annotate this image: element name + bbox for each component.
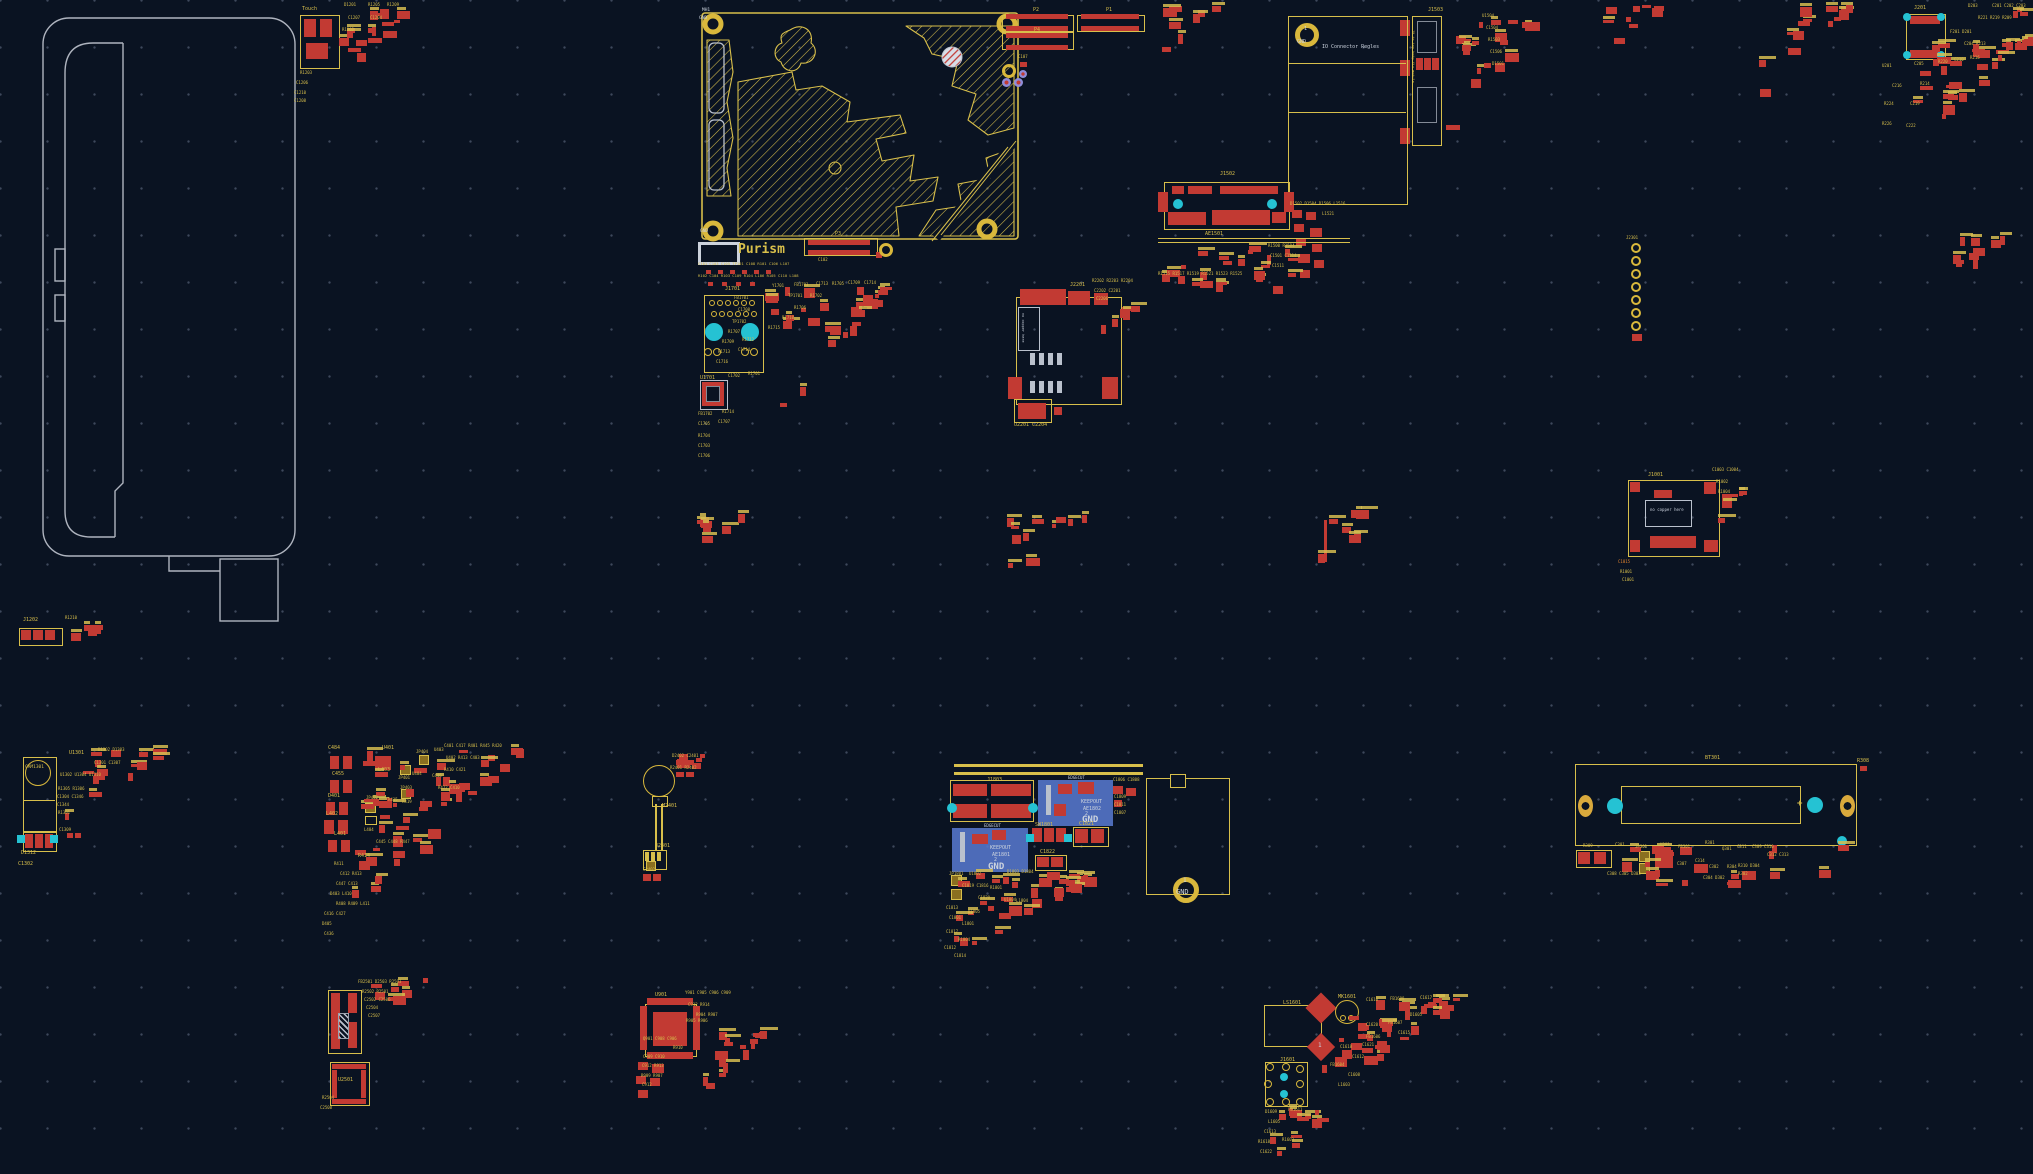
via[interactable] [1280, 1073, 1288, 1081]
component-pad[interactable] [1953, 260, 1964, 264]
ref-label[interactable]: Y1701 [772, 284, 784, 288]
ref-label[interactable]: U901 [655, 993, 667, 998]
component-pad[interactable] [1787, 32, 1798, 35]
pad-ring[interactable] [1340, 1015, 1346, 1021]
component-pad[interactable] [361, 1070, 366, 1098]
component-pad[interactable] [1044, 828, 1054, 842]
ref-label[interactable]: D1302 D1303 [98, 748, 125, 752]
ref-label[interactable]: C2508 [320, 1106, 332, 1110]
component-pad[interactable] [1405, 1010, 1410, 1019]
component-pad[interactable] [1652, 846, 1664, 853]
ref-label[interactable]: C1709 [848, 281, 860, 285]
component-pad[interactable] [1279, 1114, 1286, 1120]
ref-label[interactable]: J2301 [1626, 236, 1638, 240]
component-pad[interactable] [1626, 17, 1632, 22]
component-pad[interactable] [1973, 248, 1985, 257]
ref-label[interactable]: J1202 [23, 618, 38, 623]
ref-label[interactable]: C1204 [370, 16, 382, 20]
ref-label[interactable]: R2502 R2501 [362, 990, 389, 994]
ref-label[interactable]: R1500 R1504 [1268, 244, 1295, 248]
ref-label[interactable]: C1801 [949, 916, 961, 920]
ref-label[interactable]: P4 [1034, 28, 1040, 33]
component-pad[interactable] [1973, 260, 1978, 269]
ref-label[interactable]: C219 [1910, 102, 1920, 106]
ref-label[interactable]: R419 [402, 800, 412, 804]
component-pad[interactable] [1048, 381, 1053, 393]
component-pad[interactable] [1066, 880, 1075, 886]
ref-label[interactable]: U1701 [700, 376, 715, 381]
component-pad[interactable] [992, 879, 999, 883]
j1701-group[interactable]: J1701Y1701FB1703C1713R1705C1709C1714FB17… [698, 280, 888, 475]
component-pad[interactable] [954, 764, 1143, 767]
component-pad[interactable] [1019, 70, 1027, 78]
component-pad[interactable] [1322, 1065, 1326, 1073]
ref-label[interactable]: R1712 [742, 338, 754, 342]
component-pad[interactable] [468, 791, 477, 795]
chassis-side-notch-2[interactable] [55, 295, 65, 321]
ref-label[interactable]: 1 [1304, 27, 1307, 32]
component-pad[interactable] [738, 514, 745, 523]
ref-label[interactable]: U1802 [969, 872, 981, 876]
ref-label[interactable]: J1701 [725, 287, 740, 292]
ref-label[interactable]: C2402 [643, 868, 655, 872]
component-pad[interactable] [1081, 14, 1139, 19]
component-pad[interactable] [419, 807, 428, 811]
component-pad[interactable] [1960, 237, 1965, 246]
component-pad[interactable] [1652, 8, 1663, 17]
component-pad[interactable] [1126, 788, 1136, 796]
ref-label[interactable]: U402 R413 C403 [446, 756, 480, 760]
ref-label[interactable]: JP403 [400, 786, 412, 790]
chassis-inner-vertical[interactable] [115, 43, 123, 537]
component-pad[interactable] [383, 31, 396, 39]
component-pad[interactable] [1054, 407, 1062, 415]
ref-label[interactable]: C1615 [1398, 1031, 1410, 1035]
component-pad[interactable] [356, 40, 367, 46]
component-pad[interactable] [1272, 212, 1286, 223]
ref-label[interactable]: C1001 [1622, 578, 1634, 582]
component-pad[interactable] [686, 772, 694, 777]
component-pad[interactable] [1400, 1037, 1409, 1040]
ref-label[interactable]: C1511 [1272, 264, 1284, 268]
via[interactable] [1607, 798, 1623, 814]
component-pad[interactable] [703, 1077, 708, 1086]
component-pad[interactable] [1920, 71, 1931, 76]
ref-label[interactable]: C216 [1892, 84, 1902, 88]
component-pad[interactable] [1178, 34, 1182, 43]
ref-label[interactable]: SW1801 [1035, 823, 1053, 828]
ref-label[interactable]: C1819 C1816 [962, 884, 989, 888]
pad-ring[interactable] [1002, 64, 1016, 78]
component-pad[interactable] [1270, 1137, 1276, 1144]
via[interactable] [1903, 13, 1911, 21]
pad-ring[interactable] [879, 243, 893, 257]
component-pad[interactable] [357, 53, 366, 63]
ref-label[interactable]: + [1797, 800, 1802, 809]
pad-ring[interactable] [1335, 1000, 1359, 1024]
j1803-group[interactable]: J1803EDGECUTKEEPOUTAE18012GNDEDGECUTKEEP… [938, 746, 1238, 968]
ref-label[interactable]: D1501 [1492, 62, 1504, 66]
ref-label[interactable]: R1704 [698, 434, 710, 438]
component-pad[interactable] [1377, 1054, 1384, 1061]
ref-label[interactable]: U2201 C2204 [1014, 423, 1047, 428]
ref-label[interactable]: R1004 [1718, 490, 1730, 494]
ref-label[interactable]: C1613 [1264, 1130, 1276, 1134]
component-pad[interactable] [1578, 795, 1593, 817]
component-pad[interactable] [330, 780, 339, 793]
main-pcb[interactable] [700, 10, 1022, 242]
ref-label[interactable]: C1708 [738, 308, 750, 312]
pad-ring[interactable] [704, 348, 712, 356]
ref-label[interactable]: R102 C104 R103 C109 R104 L106 R105 C110 … [698, 274, 799, 278]
ref-label[interactable]: C205 [1914, 62, 1924, 66]
component-pad[interactable] [1032, 519, 1043, 525]
component-pad[interactable] [808, 240, 870, 245]
component-pad[interactable] [643, 874, 651, 881]
ref-label[interactable]: R411 [334, 862, 344, 866]
component-pad[interactable] [1704, 540, 1718, 552]
component-pad[interactable] [1273, 286, 1283, 294]
component-pad[interactable] [702, 536, 713, 544]
ref-label[interactable]: U201 [1882, 64, 1892, 68]
ref-label[interactable]: J2401 [655, 844, 670, 849]
ref-label[interactable]: C1501 C1514 [1270, 254, 1297, 258]
ref-label[interactable]: C1809 [1114, 795, 1126, 799]
ref-label[interactable]: C210 [1954, 58, 1964, 62]
component-pad[interactable] [1739, 491, 1747, 494]
component-pad[interactable] [1992, 62, 1998, 69]
ref-label[interactable]: FB1606 [1366, 1035, 1380, 1039]
component-pad[interactable] [1012, 909, 1021, 916]
component-pad[interactable] [1770, 872, 1780, 879]
ref-label[interactable]: GND [699, 17, 707, 22]
ref-label[interactable]: C1302 [18, 862, 33, 867]
component-pad[interactable] [1048, 353, 1053, 365]
pad-ring[interactable] [1296, 1080, 1304, 1088]
component-pad[interactable] [347, 32, 352, 38]
component-pad[interactable] [857, 287, 864, 296]
component-pad[interactable] [1614, 38, 1626, 44]
component-pad[interactable] [1428, 1002, 1436, 1006]
ref-label[interactable]: J2201 [1070, 283, 1085, 288]
ref-label[interactable]: U1302 U1304 U1310 [60, 773, 101, 777]
component-pad[interactable] [339, 802, 348, 815]
ref-label[interactable]: R1503 [1488, 38, 1500, 42]
component-pad[interactable] [380, 815, 390, 819]
component-pad[interactable] [1023, 533, 1030, 541]
component-pad[interactable] [719, 1059, 726, 1067]
component-pad[interactable] [1630, 482, 1640, 492]
ref-label[interactable]: C1820 [978, 896, 990, 900]
ref-label[interactable]: R1301 [58, 811, 70, 815]
j1001[interactable]: J1001C1003 C1004R1002R1004no copper here… [1616, 464, 1742, 586]
component-pad[interactable] [1728, 880, 1742, 889]
ref-label[interactable]: D1609 [1265, 1110, 1277, 1114]
ref-label[interactable]: C1210 [294, 91, 306, 95]
ref-label[interactable]: GND [700, 230, 708, 235]
component-pad[interactable] [1484, 63, 1491, 68]
pad-ring[interactable] [725, 300, 731, 306]
ref-label[interactable]: R216 [1970, 56, 1980, 60]
component-pad[interactable] [153, 756, 164, 760]
component-pad[interactable] [1522, 22, 1532, 28]
ref-label[interactable]: L401 [334, 832, 346, 837]
component-pad[interactable] [1959, 93, 1966, 101]
ref-label[interactable]: R1209 [387, 3, 399, 7]
component-pad[interactable] [71, 633, 81, 642]
ref-label[interactable]: R1702 [810, 294, 822, 298]
ref-label[interactable]: MH1 [702, 9, 710, 14]
mh1-label[interactable]: MH1GND [696, 6, 736, 36]
pad-ring[interactable] [1631, 295, 1641, 305]
ref-label[interactable]: D1201 [344, 3, 356, 7]
component-pad[interactable] [1471, 79, 1480, 88]
component-pad[interactable] [371, 886, 381, 892]
ref-label[interactable]: R415 [388, 798, 398, 802]
ref-label[interactable]: C455 [332, 772, 344, 777]
ref-label[interactable]: D1605 [1410, 1013, 1422, 1017]
ref-label[interactable]: C1713 [816, 282, 828, 286]
component-pad[interactable] [348, 1022, 357, 1048]
component-pad[interactable] [825, 326, 831, 332]
component-pad[interactable] [332, 1064, 366, 1069]
ref-label[interactable]: R1710 [782, 316, 794, 320]
u2501-group[interactable]: FB2501 D2503 R2503R2502 R2501C2502 C2506… [320, 976, 432, 1112]
component-pad[interactable] [441, 792, 450, 801]
ref-label[interactable]: C2502 C2506 [364, 998, 391, 1002]
component-pad[interactable] [1178, 276, 1185, 284]
ref-label[interactable]: JP401 [398, 776, 410, 780]
component-pad[interactable] [1659, 861, 1665, 866]
ref-label[interactable]: C1807 [1114, 811, 1126, 815]
ref-label[interactable]: C1207 [348, 16, 360, 20]
component-pad[interactable] [1054, 804, 1066, 816]
component-pad[interactable] [352, 890, 359, 898]
ref-label[interactable]: C436 [324, 932, 334, 936]
ref-label[interactable]: U1504 [1482, 14, 1494, 18]
component-pad[interactable] [1380, 1045, 1390, 1053]
ref-label[interactable]: C1822 [1040, 850, 1055, 855]
ref-label[interactable]: C1703 [698, 444, 710, 448]
mini-1004[interactable] [1004, 514, 1088, 580]
via[interactable] [1028, 803, 1038, 813]
component-pad[interactable] [1306, 212, 1316, 220]
component-pad[interactable] [1288, 258, 1301, 262]
pad-ring[interactable] [727, 311, 733, 317]
component-pad[interactable] [1399, 1002, 1411, 1011]
component-pad[interactable] [1052, 524, 1057, 527]
component-pad[interactable] [1910, 16, 1940, 24]
ref-label[interactable]: EDGECUT [984, 824, 1001, 828]
component-pad[interactable] [330, 756, 339, 769]
component-pad[interactable] [1642, 5, 1651, 9]
component-pad[interactable] [1948, 95, 1958, 101]
component-pad[interactable] [1860, 766, 1867, 771]
component-outline[interactable] [420, 756, 428, 764]
pad-ring[interactable] [25, 760, 51, 786]
component-pad[interactable] [1759, 60, 1766, 67]
component-pad[interactable] [1068, 519, 1074, 526]
component-pad[interactable] [2017, 41, 2021, 49]
component-pad[interactable] [332, 1099, 366, 1104]
component-pad[interactable] [808, 250, 870, 255]
ref-label[interactable]: R1515 R1517 R1519 R1521 R1523 R1525 [1158, 272, 1242, 276]
component-pad[interactable] [1198, 251, 1208, 257]
via[interactable] [947, 803, 957, 813]
pad-ring[interactable] [741, 300, 747, 306]
component-pad[interactable] [320, 19, 332, 37]
component-pad[interactable] [1694, 864, 1707, 872]
component-pad[interactable] [1977, 64, 1988, 70]
ref-label[interactable]: C1716 [716, 360, 728, 364]
pad-ring[interactable] [1631, 282, 1641, 292]
pad-ring[interactable] [1266, 1063, 1274, 1071]
component-pad[interactable] [1008, 563, 1013, 568]
ref-label[interactable]: D1803 D1804 [1007, 870, 1034, 874]
ref-label[interactable]: R2202 R2203 R2204 [1092, 279, 1133, 283]
component-pad[interactable] [1704, 482, 1716, 494]
ref-label[interactable]: C107 [1018, 55, 1028, 59]
touch[interactable]: TouchD1201R1205R1209C1207C1204R1202R1203… [292, 3, 410, 105]
component-pad[interactable] [999, 913, 1011, 920]
phone-chassis-outline[interactable] [19, 13, 299, 628]
ref-label[interactable]: R414 [358, 854, 370, 859]
component-pad[interactable] [1030, 353, 1035, 365]
component-pad[interactable] [1718, 518, 1724, 523]
component-pad[interactable] [1349, 1016, 1360, 1019]
ref-label[interactable]: R1714 [722, 410, 734, 414]
component-pad[interactable] [1979, 80, 1990, 87]
component-pad[interactable] [780, 403, 787, 407]
pconn[interactable]: P2P1P4C107 [1000, 8, 1160, 92]
pad-ring[interactable] [1282, 1063, 1290, 1071]
ref-label[interactable]: TP1702 [732, 320, 746, 324]
component-pad[interactable] [1192, 282, 1204, 286]
component-pad[interactable] [1682, 880, 1688, 886]
component-pad[interactable] [719, 1073, 726, 1077]
component-pad[interactable] [980, 901, 987, 904]
component-pad[interactable] [339, 1014, 348, 1038]
ref-label[interactable]: R1715 [768, 326, 780, 330]
ref-label[interactable]: R1001 [1620, 570, 1632, 574]
component-pad[interactable] [1329, 519, 1339, 524]
component-pad[interactable] [1949, 82, 1962, 89]
ref-label[interactable]: D405 [322, 922, 332, 926]
j201[interactable]: J201D203C201 C202 C203R221 R219 R209F201… [1880, 6, 2033, 146]
component-pad[interactable] [128, 773, 133, 781]
component-pad[interactable] [1318, 554, 1325, 562]
component-pad[interactable] [420, 801, 432, 806]
component-pad[interactable] [1630, 540, 1640, 552]
ref-label[interactable]: D401 [328, 794, 340, 799]
component-pad[interactable] [1645, 862, 1650, 867]
ref-label[interactable]: C302 [1709, 865, 1719, 869]
component-pad[interactable] [1002, 78, 1011, 87]
ref-label[interactable]: FB1703 [794, 283, 808, 287]
ref-label[interactable]: C307 [1677, 862, 1687, 866]
ref-label[interactable]: C201 C202 C203 [1992, 4, 2026, 8]
ref-label[interactable]: FB1607 [1388, 1021, 1402, 1025]
component-pad[interactable] [341, 840, 350, 852]
component-pad[interactable] [1181, 265, 1186, 269]
component-pad[interactable] [1020, 62, 1027, 67]
ref-label[interactable]: R410 C421 [444, 768, 466, 772]
ref-label[interactable]: FB1604 [1330, 1063, 1344, 1067]
ref-label[interactable]: R1707 [728, 330, 740, 334]
ref-label[interactable]: U401 [382, 746, 394, 751]
component-pad[interactable] [423, 978, 429, 983]
component-pad[interactable] [2000, 236, 2005, 244]
j1503[interactable]: J1503U1504C1504R1503C1506D1501J9 to top … [1398, 8, 1533, 148]
component-pad[interactable] [972, 834, 988, 844]
ref-label[interactable]: J1803 [987, 778, 1002, 783]
component-pad[interactable] [1349, 535, 1361, 543]
component-pad[interactable] [676, 772, 684, 777]
component-pad[interactable] [1170, 774, 1186, 788]
component-pad[interactable] [972, 941, 977, 945]
component-pad[interactable] [348, 48, 361, 52]
ref-label[interactable]: P3 [835, 232, 841, 237]
ref-label[interactable]: J1001 [1648, 473, 1663, 478]
ref-label[interactable]: R1205 [368, 3, 380, 7]
component-pad[interactable] [1011, 526, 1019, 530]
component-pad[interactable] [843, 332, 848, 339]
pad-ring[interactable] [711, 311, 717, 317]
pad-ring[interactable] [1631, 308, 1641, 318]
component-pad[interactable] [1068, 291, 1090, 305]
component-pad[interactable] [638, 1090, 648, 1098]
component-pad[interactable] [397, 11, 411, 19]
mini-684[interactable] [684, 514, 738, 576]
component-pad[interactable] [75, 833, 81, 838]
component-pad[interactable] [1943, 105, 1955, 115]
via[interactable] [705, 323, 723, 341]
component-pad[interactable] [1014, 78, 1023, 87]
ref-label[interactable]: C912 R913 [642, 1064, 664, 1068]
ref-label[interactable]: FB1702 [698, 412, 712, 416]
component-pad[interactable] [1223, 261, 1232, 265]
ref-label[interactable]: JP404 [416, 750, 428, 754]
component-pad[interactable] [1024, 908, 1033, 915]
mini-1753[interactable] [1753, 4, 1848, 99]
component-pad[interactable] [954, 772, 1143, 775]
ref-label[interactable]: C1506 [1490, 50, 1502, 54]
ref-label[interactable]: C1612 [1352, 1055, 1364, 1059]
component-pad[interactable] [391, 987, 398, 992]
component-pad[interactable] [1292, 1143, 1300, 1147]
ref-label[interactable]: L1521 [1322, 212, 1334, 216]
component-pad[interactable] [647, 998, 693, 1005]
component-pad[interactable] [657, 852, 661, 861]
ref-label[interactable]: L403 [378, 768, 390, 773]
component-pad[interactable] [724, 1042, 733, 1045]
ref-label[interactable]: GND [1176, 889, 1189, 896]
component-pad[interactable] [1424, 58, 1431, 70]
via[interactable] [1903, 51, 1911, 59]
component-pad[interactable] [2006, 42, 2013, 50]
component-pad[interactable] [859, 310, 865, 317]
component-pad[interactable] [1031, 888, 1038, 898]
ref-label[interactable]: C1206 [296, 81, 308, 85]
ref-label[interactable]: C909 C910 [643, 1055, 665, 1059]
component-pad[interactable] [363, 761, 375, 766]
via[interactable] [1937, 13, 1945, 21]
ref-label[interactable]: C412 R413 [340, 872, 362, 876]
component-pad[interactable] [139, 752, 148, 756]
component-pad[interactable] [1387, 1029, 1391, 1038]
component-pad[interactable] [1082, 515, 1088, 523]
ref-label[interactable]: C1813 [946, 906, 958, 910]
